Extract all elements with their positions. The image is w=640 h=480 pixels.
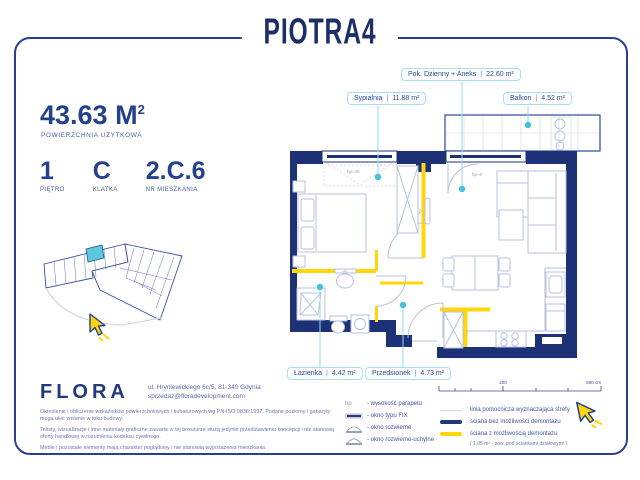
floor-plan-svg: hp=45 hp=0 TV 200 500 cm [280, 58, 622, 398]
furniture [293, 166, 566, 348]
unit-attributes: 1 PIĘTRO C KLATKA 2.C.6 NR MIESZKANIA [40, 158, 205, 193]
demountable-wall-note: ( 1.05 m² - pow. pod ściankami działowym… [470, 441, 620, 447]
floor-plan: hp=45 hp=0 TV 200 500 cm [280, 58, 622, 398]
fixed-wall-icon [440, 420, 462, 424]
development-logo: PIOTRA4 [242, 16, 398, 48]
staircase-value: C [93, 158, 118, 184]
floor-label: PIĘTRO [40, 187, 65, 193]
apartment-number-value: 2.C.6 [146, 158, 206, 184]
room-label-balkon: Balkon|4.52 m² [503, 92, 572, 105]
scale-mid-label: 200 [499, 380, 507, 385]
demountable-wall-icon [440, 432, 462, 436]
development-logo-text: PIOTRA4 [264, 11, 377, 53]
staircase-label: KLATKA [93, 187, 118, 193]
scale-end-label: 500 cm [586, 380, 601, 385]
sofa [528, 171, 566, 253]
hp-living-note: hp=0 [472, 172, 483, 177]
unit-area-value: 43.63 M [40, 100, 138, 130]
room-label-przedsionek: Przedsionek|4.73 m² [365, 367, 451, 380]
tv [425, 198, 430, 224]
brochure-page: PIOTRA4 43.63 M2 POWIERZCHNIA UŻYTKOWA 1… [0, 0, 640, 480]
attr-staircase: C KLATKA [93, 158, 118, 193]
cursor-icon [86, 312, 112, 342]
hp-bedroom-note: hp=45 [347, 169, 360, 174]
aux-line-icon [440, 410, 462, 411]
unit-area-sup: 2 [138, 102, 145, 117]
disclaimers: Określenie i obliczenie wskaźników powie… [40, 409, 338, 456]
building-locator-map [30, 228, 230, 338]
fix-window-icon [345, 412, 367, 420]
floor-value: 1 [40, 158, 65, 184]
developer-address: ul. Hryniewickiego 6c/5, 81-340 Gdynia [148, 383, 261, 392]
developer-logo: FLORA [40, 381, 129, 404]
disclaimer-3: Meble i pozostałe elementy mają charakte… [40, 445, 338, 452]
attr-apartment-number: 2.C.6 NR MIESZKANIA [146, 158, 206, 193]
room-label-pok-dzienny: Pok. Dzienny + Aneks|22.60 m² [401, 68, 521, 81]
cursor-icon [571, 395, 607, 433]
casement-window-icon [345, 423, 367, 433]
developer-email[interactable]: sprzedaz@floradevelopment.com [148, 392, 261, 401]
apartment-number-label: NR MIESZKANIA [146, 187, 206, 193]
balcony-area [445, 115, 600, 151]
kitchen-shaft [542, 337, 562, 344]
disclaimer-1: Określenie i obliczenie wskaźników powie… [40, 409, 338, 423]
hp-symbol: hp [345, 401, 367, 407]
developer-contact: ul. Hryniewickiego 6c/5, 81-340 Gdynia s… [148, 383, 261, 401]
bath-sink [337, 274, 354, 288]
toilet [332, 321, 345, 333]
fridge [546, 304, 565, 331]
unit-area: 43.63 M2 [40, 100, 145, 131]
room-label-lazienka: Łazienka|4.42 m² [287, 367, 363, 380]
washing-machine [351, 315, 369, 333]
attr-floor: 1 PIĘTRO [40, 158, 65, 193]
scale-bar [439, 386, 601, 391]
tv-label: TV [418, 209, 423, 214]
tilt-window-icon [345, 435, 367, 445]
stove [496, 331, 526, 347]
disclaimer-2: Teksty, wizualizacje i inne materiały gr… [40, 427, 338, 441]
unit-area-caption: POWIERZCHNIA UŻYTKOWA [41, 132, 142, 139]
legend-item-demountable-wall: ściana z możliwością demontażu [440, 428, 620, 440]
coffee-table [499, 210, 523, 240]
room-label-sypialnia: Sypialnia|11.88 m² [347, 92, 426, 105]
